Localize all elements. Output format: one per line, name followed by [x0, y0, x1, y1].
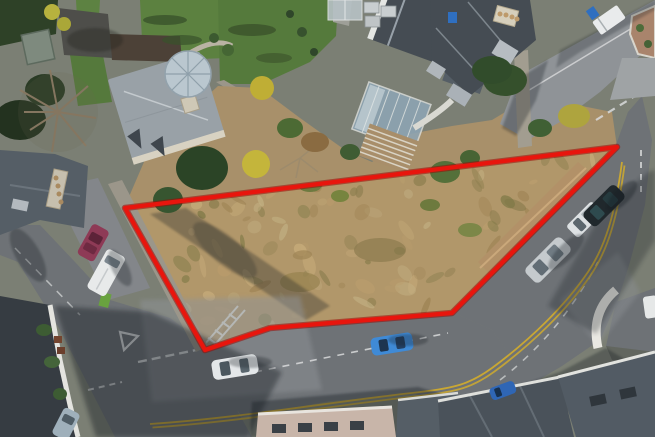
- yellow-bush: [250, 76, 274, 100]
- scrub-green-clump: [420, 199, 440, 211]
- blue-bin: [448, 12, 457, 23]
- skylight: [324, 422, 338, 431]
- aerial-photo: [0, 0, 655, 437]
- scrub-dark-patch: [354, 238, 406, 262]
- cold-frame: [364, 2, 379, 13]
- hedge: [44, 356, 60, 368]
- shrub: [286, 10, 294, 18]
- shrub: [222, 44, 234, 56]
- aerial-photo-stage: [0, 0, 655, 437]
- skylight: [272, 424, 286, 433]
- yellow-bush: [44, 4, 60, 20]
- conservatory-octagon: [165, 51, 211, 97]
- brown-bin: [54, 336, 62, 343]
- conifer-tree: [176, 146, 228, 190]
- shrub: [636, 24, 644, 32]
- windshield: [378, 339, 389, 352]
- orange-shrub: [301, 132, 329, 152]
- skylight: [298, 423, 312, 432]
- yellow-bush: [242, 150, 270, 178]
- skylight: [350, 421, 364, 430]
- shrub: [644, 40, 652, 48]
- lawn-shadow: [228, 24, 276, 36]
- hedge: [36, 324, 52, 336]
- scrub-green-clump: [331, 190, 349, 202]
- cold-frame: [365, 16, 380, 27]
- garden-shed: [21, 29, 55, 64]
- shrub: [209, 33, 219, 43]
- yellow-bush: [57, 17, 71, 31]
- shrub: [310, 48, 318, 56]
- lawn-shadow: [143, 15, 187, 25]
- hedge: [53, 388, 67, 400]
- bush: [528, 119, 552, 137]
- tree-shadow: [67, 28, 123, 52]
- brown-bin: [57, 347, 65, 354]
- scrub-green-clump: [458, 223, 482, 237]
- bush: [277, 118, 303, 138]
- bush: [340, 144, 360, 160]
- cold-frame: [381, 6, 396, 17]
- lawn-shadow: [256, 53, 292, 63]
- shrub: [297, 27, 307, 37]
- lawn-shadow: [162, 35, 202, 45]
- tree-mass: [472, 56, 512, 84]
- yellow-bush: [558, 104, 590, 128]
